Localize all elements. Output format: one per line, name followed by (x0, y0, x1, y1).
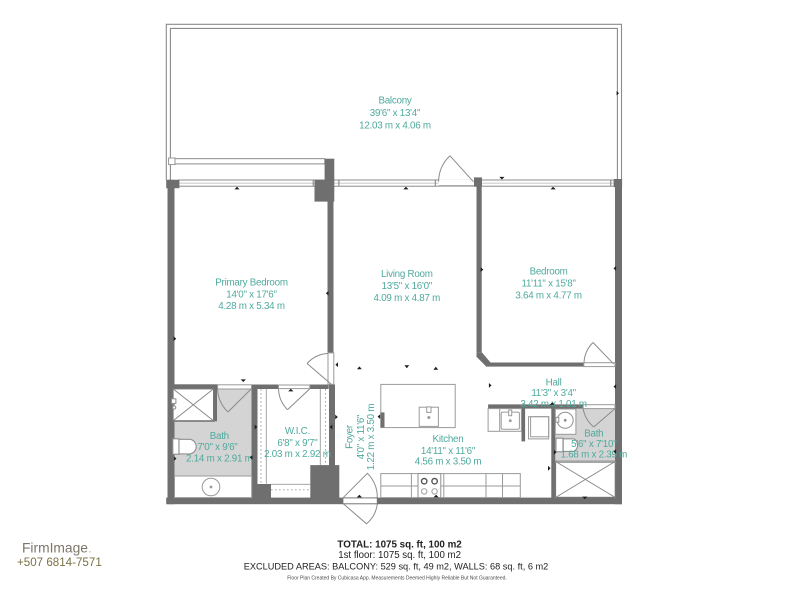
svg-text:Balcony: Balcony (378, 96, 411, 107)
svg-text:Primary Bedroom: Primary Bedroom (215, 278, 288, 289)
svg-text:39'6" x 13'4": 39'6" x 13'4" (370, 108, 421, 119)
svg-text:Bath: Bath (584, 428, 603, 439)
svg-text:1.22 m x 3.50 m: 1.22 m x 3.50 m (366, 404, 377, 471)
svg-text:4.09 m x 4.87 m: 4.09 m x 4.87 m (374, 293, 441, 304)
svg-text:4.56 m x 3.50 m: 4.56 m x 3.50 m (415, 457, 482, 468)
svg-text:11'3" x 3'4": 11'3" x 3'4" (531, 388, 576, 399)
svg-text:TOTAL: 1075 sq. ft, 100 m2: TOTAL: 1075 sq. ft, 100 m2 (337, 540, 462, 551)
svg-text:Bath: Bath (210, 431, 229, 442)
svg-text:13'5" x 16'0": 13'5" x 16'0" (382, 281, 433, 292)
svg-text:Floor Plan Created By Cubicasa: Floor Plan Created By Cubicasa App. Meas… (287, 576, 507, 582)
svg-text:1.68 m x 2.39 m: 1.68 m x 2.39 m (561, 450, 628, 461)
svg-text:11'11" x 15'8": 11'11" x 15'8" (521, 279, 576, 290)
svg-text:5'6" x 7'10": 5'6" x 7'10" (571, 439, 617, 450)
svg-text:Hall: Hall (546, 378, 562, 389)
svg-text:4.28 m x 5.34 m: 4.28 m x 5.34 m (218, 301, 285, 312)
svg-text:EXCLUDED AREAS: BALCONY: 529 s: EXCLUDED AREAS: BALCONY: 529 sq. ft, 49 … (244, 561, 549, 571)
svg-text:14'0" x 17'6": 14'0" x 17'6" (226, 290, 277, 301)
svg-text:3.64 m x 4.77 m: 3.64 m x 4.77 m (515, 291, 582, 302)
svg-text:12.03 m x 4.06 m: 12.03 m x 4.06 m (359, 121, 431, 132)
svg-text:7'0" x 9'6": 7'0" x 9'6" (197, 442, 238, 453)
svg-text:W.I.C.: W.I.C. (285, 426, 310, 437)
svg-text:14'11" x 11'6": 14'11" x 11'6" (421, 446, 476, 457)
svg-text:Foyer: Foyer (345, 424, 356, 449)
svg-text:6'8" x 9'7": 6'8" x 9'7" (277, 438, 318, 449)
svg-text:Kitchen: Kitchen (433, 434, 464, 445)
svg-text:Bedroom: Bedroom (530, 267, 568, 278)
svg-text:FirmImage.: FirmImage. (22, 541, 92, 556)
svg-text:2.14 m x 2.91 m: 2.14 m x 2.91 m (186, 453, 253, 464)
svg-text:1st floor: 1075 sq. ft, 100 m2: 1st floor: 1075 sq. ft, 100 m2 (338, 550, 461, 561)
svg-text:+507 6814-7571: +507 6814-7571 (17, 556, 102, 569)
svg-text:Living Room: Living Room (381, 269, 433, 280)
svg-text:2.03 m x 2.92 m: 2.03 m x 2.92 m (264, 449, 331, 460)
